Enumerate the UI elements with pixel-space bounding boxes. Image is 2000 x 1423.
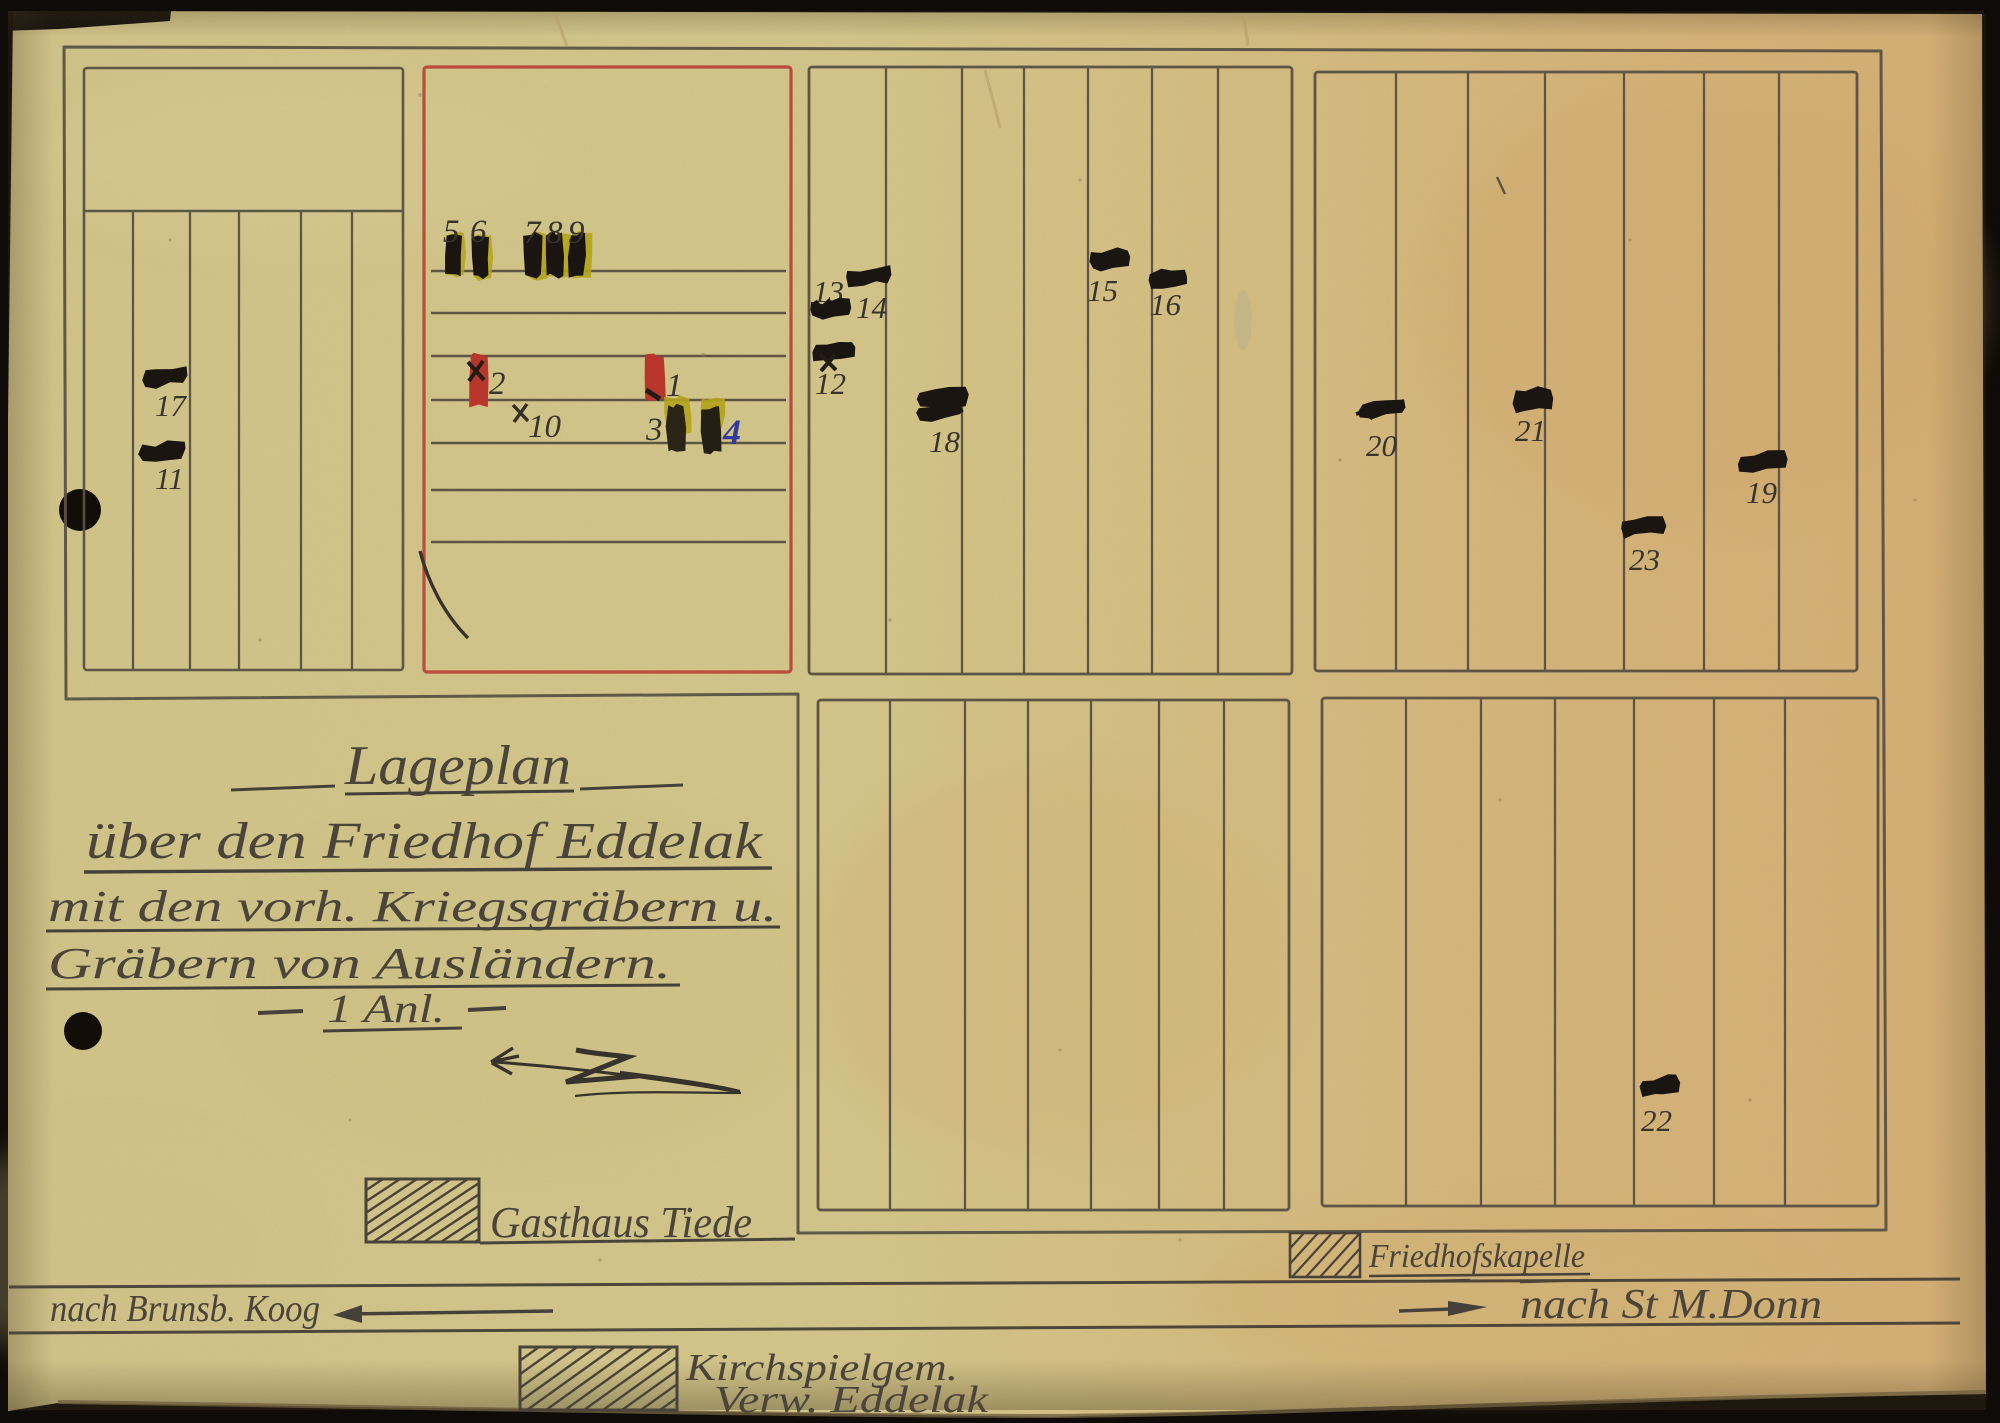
svg-text:21: 21: [1515, 413, 1546, 448]
svg-text:15: 15: [1087, 273, 1118, 308]
svg-text:Gasthaus Tiede: Gasthaus Tiede: [490, 1198, 752, 1247]
svg-text:14: 14: [856, 290, 887, 325]
svg-text:8: 8: [546, 215, 563, 251]
svg-text:nach Brunsb. Koog: nach Brunsb. Koog: [50, 1288, 320, 1330]
svg-text:mit den vorh. Kriegsgräbern u.: mit den vorh. Kriegsgräbern u.: [48, 882, 777, 931]
svg-text:7: 7: [524, 215, 542, 251]
svg-text:5: 5: [443, 214, 460, 250]
svg-text:9: 9: [568, 215, 585, 251]
svg-text:3: 3: [645, 412, 663, 448]
svg-text:Gräbern von Ausländern.: Gräbern von Ausländern.: [48, 939, 671, 988]
svg-text:12: 12: [815, 366, 846, 401]
svg-text:nach St M.Donn: nach St M.Donn: [1520, 1282, 1822, 1328]
svg-text:4: 4: [722, 412, 741, 452]
svg-text:über den Friedhof Eddelak: über den Friedhof Eddelak: [86, 813, 763, 870]
svg-text:17: 17: [155, 388, 188, 423]
svg-text:20: 20: [1366, 428, 1398, 463]
svg-text:10: 10: [528, 409, 562, 445]
svg-text:Lageplan: Lageplan: [344, 735, 571, 797]
svg-text:Verw. Eddelak: Verw. Eddelak: [714, 1379, 989, 1421]
svg-text:1 Anl.: 1 Anl.: [327, 986, 445, 1031]
svg-text:11: 11: [155, 461, 184, 496]
svg-text:16: 16: [1150, 287, 1182, 322]
svg-text:22: 22: [1641, 1103, 1672, 1138]
svg-text:Friedhofskapelle: Friedhofskapelle: [1368, 1238, 1585, 1275]
svg-text:6: 6: [470, 214, 487, 250]
svg-text:23: 23: [1629, 542, 1660, 577]
svg-text:19: 19: [1746, 475, 1777, 510]
svg-text:2: 2: [489, 366, 506, 402]
svg-text:18: 18: [929, 424, 961, 459]
